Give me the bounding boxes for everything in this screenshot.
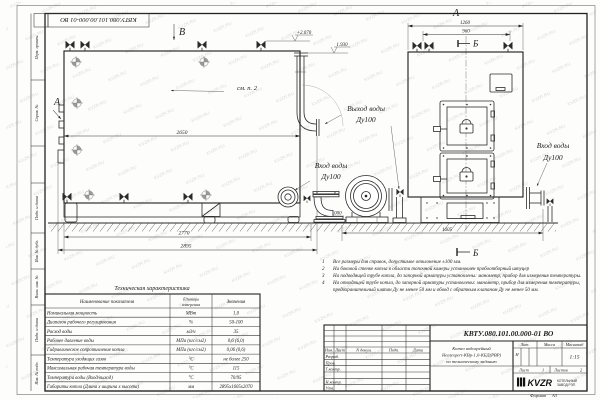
tech-row-value: не более 250	[223, 357, 249, 362]
tech-col-name: Наименование показателя	[79, 300, 135, 305]
strip-podp-data-2: Подп. и дата	[34, 318, 39, 343]
tech-row-name: Максимальная рабочая температура воды	[46, 367, 135, 372]
sheet-value: 1	[542, 367, 544, 372]
note-number: 2	[322, 267, 333, 274]
rev-header-izm: Изм.	[324, 348, 333, 353]
strip-vzam-inv: Взам. инв. №	[34, 275, 39, 298]
note-text: На подводящей трубе котла, до запорной а…	[333, 274, 588, 281]
rev-header-podp: Подп.	[388, 348, 399, 353]
tech-row-units: МПа (кгс/см2)	[175, 348, 206, 353]
tech-row-units: °С	[188, 357, 194, 362]
note-text: Все размеры для справок, допустимое откл…	[333, 260, 588, 267]
inlet-label-left-dn: Ду100	[320, 172, 341, 181]
strip-podp-data-1: Подп. и дата	[34, 196, 39, 221]
ground-line	[48, 223, 558, 232]
tech-row-units: МПа (кгс/см2)	[175, 339, 206, 344]
rev-header-doc: N докум.	[355, 348, 371, 353]
note-item: 4 На отводящей трубе котла, до запорной …	[322, 281, 588, 294]
tech-row-value: 0,06 (0,6)	[227, 348, 246, 353]
rev-header-list: Лист	[334, 348, 345, 353]
sheets-label: Листов	[553, 367, 568, 372]
section-b-bottom: Б	[472, 248, 479, 258]
tech-row-value: 115	[233, 367, 240, 372]
section-b-top: Б	[472, 39, 479, 49]
view-a-label: А	[452, 8, 460, 19]
tech-row-name: Гидравлическое сопротивление котла	[46, 348, 125, 353]
outlet-label-dn: Ду100	[355, 115, 376, 124]
role-nkontr: Н.контр.	[325, 379, 342, 384]
note-item: 1 Все размеры для справок, допустимое от…	[322, 260, 588, 267]
doc-designation: КВТУ.080.101.00.000-01 ВО	[463, 329, 554, 338]
note-number: 1	[322, 260, 333, 267]
mass-header: Масса	[543, 342, 555, 347]
lit-header: Лит.	[519, 342, 529, 347]
tech-row-units: МВт	[185, 311, 197, 316]
note-item: 3 На подводящей трубе котла, до запорной…	[322, 274, 588, 281]
dim-2650: 2650	[177, 130, 188, 136]
note-number: 4	[322, 281, 333, 294]
tech-row-units: мм	[187, 385, 194, 390]
role-razrab: Разраб.	[325, 354, 339, 359]
tech-row-name: Расход воды	[46, 330, 73, 335]
dim-960: 960	[462, 29, 470, 34]
strip-sprav-no: Справ. №	[34, 104, 39, 121]
strip-inv-dubl: Инв. № дубл.	[34, 240, 39, 264]
tech-row-value: 50-100	[229, 321, 243, 326]
product-name-3: по техническому заданию	[446, 359, 497, 364]
tech-col-value: Значения	[227, 300, 246, 305]
scale-header: Масштаб	[565, 342, 585, 347]
role-prov: Пров.	[325, 360, 336, 365]
product-name-1: Котел водогрейный	[451, 346, 491, 351]
notes-list: 1 Все размеры для справок, допустимое от…	[322, 260, 588, 295]
format-value: А3	[551, 393, 558, 398]
tech-row-name: Габариты котла (Длина х ширина х высота)	[46, 385, 139, 390]
strip-perv-primen: Перв. примен.	[34, 35, 39, 61]
tech-row-name: Номинальная мощность	[46, 311, 98, 316]
sheets-value: 2	[580, 367, 582, 372]
tech-row-name: Температура воды (Вход/выход)	[47, 376, 113, 381]
tech-row-value: 35	[234, 330, 239, 335]
tech-row-value: 0,6 (6,0)	[228, 339, 245, 344]
sheet-label: Лист	[518, 367, 529, 372]
role-tkontr: Т.контр.	[326, 367, 341, 372]
tech-row-units: м3/ч	[185, 330, 196, 335]
format-label: Формат	[530, 393, 547, 398]
tech-table-title: Техническая характеристика	[114, 286, 189, 292]
note-text: На отводящей трубе котла, до запорной ар…	[333, 281, 588, 294]
inlet-label-right-dn: Ду100	[542, 153, 563, 162]
dim-2895: 2895	[181, 244, 192, 250]
tech-row-units: °С	[188, 376, 194, 381]
inlet-label-right: Вход воды	[537, 141, 570, 150]
note-number: 3	[322, 274, 333, 281]
corner-stamp-text: КВТУ.080.101.00.000-01 ВО	[60, 16, 138, 23]
level-outlet: 1.930	[336, 43, 348, 48]
tech-row-value: 70/95	[231, 376, 243, 381]
level-top: +2.070	[297, 31, 312, 36]
view-b-label: В	[179, 27, 185, 38]
logo-sub1: КОТЕЛЬНЫЙ	[557, 379, 578, 383]
tech-row-value: 1,0	[233, 311, 240, 316]
tech-row-units: %	[189, 321, 193, 326]
tech-col-units: Единицы	[182, 297, 199, 302]
outlet-label: Выход воды	[347, 104, 385, 113]
drawing-canvas: KVZR.RU KVZR.RU	[0, 0, 600, 400]
see-note-annotation: см. п. 2	[237, 85, 258, 92]
tech-row-name: Диапазон рабочего регулирования	[46, 321, 117, 326]
dim-1260: 1260	[460, 21, 471, 26]
note-item: 2 На боковой стенке котла в области топо…	[322, 267, 588, 274]
strip-inv-podl: Инв. № подл.	[34, 361, 39, 385]
note-text: На боковой стенке котла в области топочн…	[333, 267, 588, 274]
tech-row-name: Температура уходящих газов	[47, 357, 106, 362]
tech-row-name: Рабочее давление воды	[46, 339, 95, 344]
inlet-label-left: Вход воды	[315, 161, 348, 170]
watermark-layer	[6, 2, 596, 398]
view-a-arrow-label: А	[53, 97, 61, 108]
logo-text: KVZR	[528, 378, 553, 388]
tech-row-value: 2895х1605х2070	[219, 385, 253, 390]
tech-col-units2: измерения	[182, 302, 200, 307]
scale-value: 1:15	[569, 355, 579, 361]
tech-row-units: °С	[188, 367, 194, 372]
rev-header-data: Дата	[412, 348, 423, 353]
role-utv: Утв.	[326, 386, 335, 391]
drawing-sheet: KVZR.RU KVZR.RU	[0, 0, 600, 400]
logo-sub2: ЗАВОД РЭП	[557, 383, 576, 387]
